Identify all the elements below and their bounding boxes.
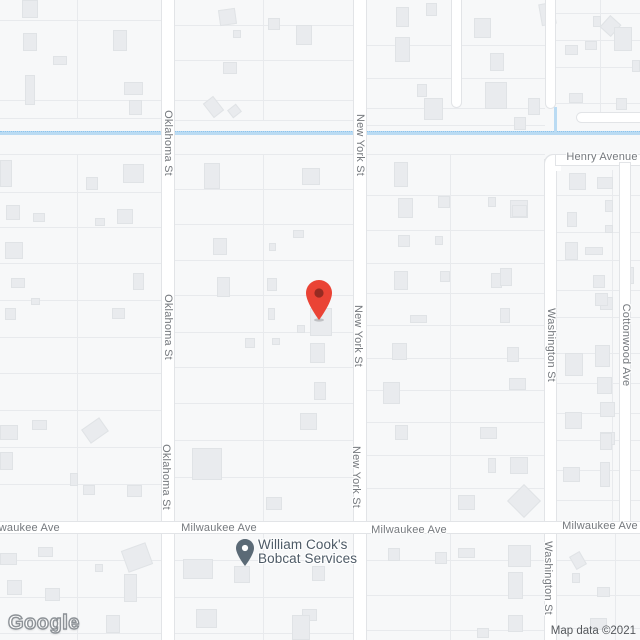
building-footprint <box>196 609 217 628</box>
building-footprint <box>95 218 105 226</box>
parcel-line <box>174 100 354 101</box>
building-footprint <box>121 542 153 573</box>
building-footprint <box>597 177 613 189</box>
building-footprint <box>129 100 142 115</box>
parcel-line <box>366 325 545 326</box>
parcel-line <box>174 154 354 155</box>
parcel-line <box>366 154 545 155</box>
building-footprint <box>490 53 504 71</box>
building-footprint <box>86 177 98 190</box>
parcel-line <box>615 533 616 640</box>
stream <box>0 131 640 135</box>
parcel-line <box>174 403 354 404</box>
parcel-line <box>174 440 354 441</box>
parcel-line <box>174 224 354 225</box>
building-footprint <box>314 382 326 400</box>
building-footprint <box>388 548 400 561</box>
road-milwaukee-ave <box>0 522 640 533</box>
building-footprint <box>600 462 610 487</box>
stream-branch <box>554 107 557 133</box>
building-footprint <box>45 588 60 601</box>
building-footprint <box>25 75 35 105</box>
building-footprint <box>95 564 103 572</box>
building-footprint <box>0 553 17 565</box>
building-footprint <box>569 551 587 570</box>
building-footprint <box>508 545 531 567</box>
parcel-line <box>174 60 354 61</box>
parcel-line <box>366 195 545 196</box>
parcel-line <box>0 263 162 264</box>
building-footprint <box>106 615 120 633</box>
building-footprint <box>6 205 20 220</box>
building-footprint <box>272 338 280 345</box>
building-footprint <box>218 8 237 26</box>
building-footprint <box>488 458 496 473</box>
building-footprint <box>572 573 580 583</box>
street-label: Washington St <box>545 308 557 382</box>
building-footprint <box>297 325 305 333</box>
parcel-line <box>0 410 162 411</box>
parcel-line <box>366 263 545 264</box>
building-footprint <box>569 93 583 103</box>
building-footprint <box>396 7 409 27</box>
building-footprint <box>508 615 523 632</box>
building-footprint <box>508 572 523 599</box>
building-footprint <box>569 173 586 190</box>
building-footprint <box>227 104 242 119</box>
poi-name-line1[interactable]: William Cook's <box>258 538 357 552</box>
building-footprint <box>245 338 255 348</box>
building-footprint <box>0 452 13 470</box>
street-label: Washington St <box>542 541 554 615</box>
parcel-line <box>366 108 545 109</box>
street-label: Milwaukee Ave <box>562 520 638 532</box>
building-footprint <box>585 41 597 50</box>
building-footprint <box>183 559 213 579</box>
parcel-line <box>174 260 354 261</box>
parcel-line <box>0 227 162 228</box>
parcel-line <box>556 560 640 561</box>
poi-pin-icon[interactable] <box>236 539 254 566</box>
building-footprint <box>458 495 475 510</box>
building-footprint <box>266 497 282 510</box>
building-footprint <box>510 457 528 474</box>
building-footprint <box>600 402 615 417</box>
building-footprint <box>474 18 491 38</box>
building-footprint <box>192 448 222 480</box>
building-footprint <box>597 377 612 394</box>
building-footprint <box>565 242 578 260</box>
building-footprint <box>113 30 127 51</box>
building-footprint <box>394 271 408 290</box>
building-footprint <box>23 33 37 51</box>
building-footprint <box>392 343 407 360</box>
building-footprint <box>500 308 510 323</box>
building-footprint <box>605 225 613 233</box>
building-footprint <box>124 82 143 95</box>
building-footprint <box>38 547 53 557</box>
building-footprint <box>133 273 144 290</box>
building-footprint <box>426 3 437 16</box>
building-footprint <box>632 60 640 72</box>
parcel-line <box>0 118 162 119</box>
parcel-line <box>174 597 354 598</box>
building-footprint <box>565 353 583 376</box>
google-logo[interactable]: Google <box>8 612 80 635</box>
building-footprint <box>217 277 230 297</box>
street-label: New York St <box>352 305 364 367</box>
building-footprint <box>507 484 541 518</box>
building-footprint <box>438 196 450 208</box>
building-footprint <box>293 230 304 238</box>
building-footprint <box>81 417 109 444</box>
parcel-line <box>174 633 354 634</box>
building-footprint <box>585 247 603 255</box>
parcel-line <box>263 0 264 120</box>
building-footprint <box>485 82 507 109</box>
poi-label[interactable]: William Cook's Bobcat Services <box>258 538 357 566</box>
building-footprint <box>480 427 497 439</box>
building-footprint <box>5 242 23 259</box>
parcel-line <box>263 154 264 522</box>
parcel-line <box>0 337 162 338</box>
parcel-line <box>450 533 451 640</box>
parcel-line <box>0 300 162 301</box>
road-dead-end-west <box>452 0 461 107</box>
building-footprint <box>31 298 40 305</box>
building-footprint <box>458 548 475 558</box>
street-label: Milwaukee Ave <box>181 522 257 534</box>
parcel-line <box>366 422 545 423</box>
road-dead-end-east <box>546 0 555 108</box>
building-footprint <box>565 45 578 55</box>
street-label: Oklahoma St <box>162 110 174 176</box>
building-footprint <box>83 485 95 495</box>
building-footprint <box>302 168 320 185</box>
building-footprint <box>267 278 277 291</box>
building-footprint <box>5 308 16 320</box>
building-footprint <box>595 345 610 367</box>
building-footprint <box>268 18 280 30</box>
parcel-line <box>556 13 640 14</box>
building-footprint <box>33 213 45 222</box>
building-footprint <box>563 467 580 482</box>
building-footprint <box>395 37 410 62</box>
building-footprint <box>117 209 133 224</box>
parcel-line <box>77 154 78 522</box>
building-footprint <box>595 293 608 306</box>
street-label: New York St <box>354 114 366 176</box>
building-footprint <box>440 271 450 282</box>
building-footprint <box>292 615 310 640</box>
building-footprint <box>600 433 612 450</box>
building-footprint <box>268 308 275 320</box>
building-footprint <box>435 236 443 245</box>
parcel-line <box>366 230 545 231</box>
poi-name-line2[interactable]: Bobcat Services <box>258 552 357 566</box>
building-footprint <box>234 566 250 583</box>
parcel-line <box>450 154 451 522</box>
building-footprint <box>296 25 312 45</box>
building-footprint <box>514 117 526 130</box>
building-footprint <box>477 628 489 638</box>
parcel-line <box>0 20 162 21</box>
building-footprint <box>398 198 413 218</box>
street-label: Milwaukee Ave <box>0 522 60 534</box>
parcel-line <box>0 192 162 193</box>
parcel-line <box>174 25 354 26</box>
building-footprint <box>233 30 241 38</box>
building-footprint <box>605 200 613 212</box>
parcel-line <box>0 154 162 155</box>
location-marker-icon[interactable] <box>306 280 332 322</box>
building-footprint <box>70 473 78 486</box>
building-footprint <box>395 425 408 440</box>
parcel-line <box>556 103 640 104</box>
parcel-line <box>174 120 354 121</box>
parcel-line <box>174 189 354 190</box>
building-footprint <box>509 378 526 390</box>
building-footprint <box>32 420 47 430</box>
building-footprint <box>213 238 227 255</box>
building-footprint <box>528 98 540 115</box>
building-footprint <box>565 412 582 429</box>
parcel-line <box>0 447 162 448</box>
building-footprint <box>124 574 137 602</box>
building-footprint <box>500 268 512 286</box>
building-footprint <box>394 162 408 187</box>
street-label: Oklahoma St <box>160 444 172 510</box>
parcel-line <box>0 597 162 598</box>
building-footprint <box>424 98 443 120</box>
building-footprint <box>417 84 427 97</box>
building-footprint <box>112 308 125 319</box>
street-label: Cottonwood Ave <box>620 304 632 387</box>
street-label: Milwaukee Ave <box>371 524 447 536</box>
parcel-line <box>174 367 354 368</box>
street-label: Oklahoma St <box>162 294 174 360</box>
building-footprint <box>0 425 18 440</box>
building-footprint <box>512 205 527 217</box>
building-footprint <box>223 62 237 74</box>
building-footprint <box>310 343 325 363</box>
building-footprint <box>300 413 317 430</box>
building-footprint <box>123 164 144 183</box>
street-label: Henry Avenue <box>566 151 637 163</box>
building-footprint <box>488 197 496 207</box>
building-footprint <box>593 275 605 288</box>
building-footprint <box>7 580 22 595</box>
parcel-line <box>612 170 613 522</box>
parcel-line <box>556 67 640 68</box>
building-footprint <box>53 56 67 65</box>
map-attribution: Map data ©2021 <box>551 625 636 637</box>
street-label: New York St <box>350 446 362 508</box>
building-footprint <box>597 587 610 597</box>
building-footprint <box>435 552 447 564</box>
map-canvas[interactable]: William Cook's Bobcat Services Google Ma… <box>0 0 640 640</box>
road-stub-northeast <box>577 113 640 122</box>
building-footprint <box>127 485 142 497</box>
building-footprint <box>507 347 519 362</box>
building-footprint <box>614 27 632 51</box>
building-footprint <box>312 566 325 581</box>
building-footprint <box>398 235 410 247</box>
parcel-line <box>0 373 162 374</box>
building-footprint <box>204 163 220 189</box>
parcel-line <box>366 293 545 294</box>
building-footprint <box>616 98 627 110</box>
building-footprint <box>383 382 400 404</box>
building-footprint <box>567 212 577 227</box>
building-footprint <box>11 278 25 288</box>
building-footprint <box>410 315 427 323</box>
parcel-line <box>77 0 78 118</box>
building-footprint <box>0 160 12 187</box>
building-footprint <box>22 0 38 18</box>
building-footprint <box>269 243 276 251</box>
parcel-line <box>366 455 545 456</box>
